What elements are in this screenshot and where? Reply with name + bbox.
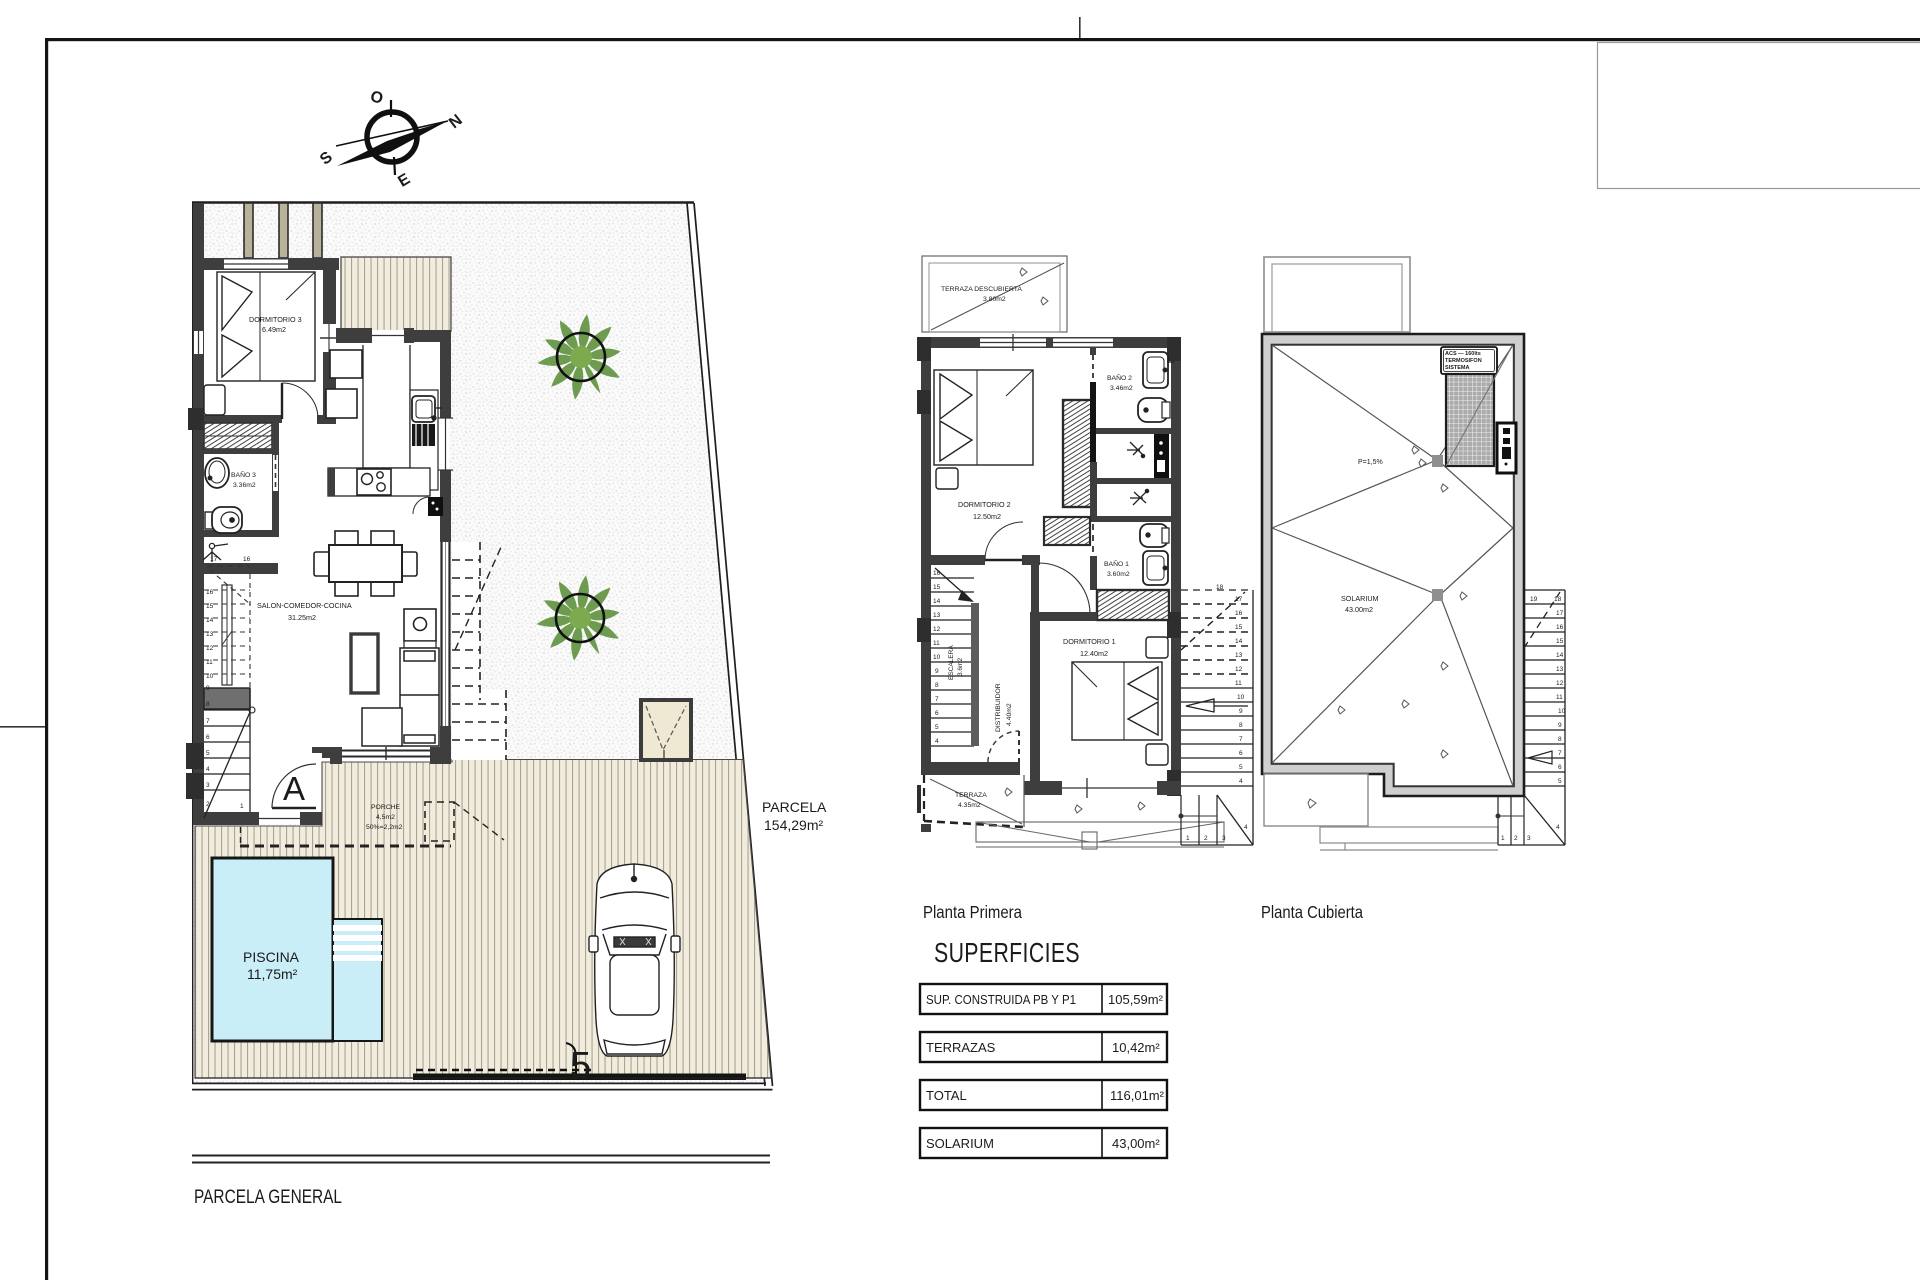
svg-text:3.36m2: 3.36m2: [233, 482, 256, 489]
svg-text:11: 11: [933, 640, 940, 647]
svg-text:TERRAZAS: TERRAZAS: [926, 1040, 996, 1055]
svg-text:12: 12: [206, 645, 214, 652]
svg-text:12.40m2: 12.40m2: [1080, 649, 1108, 658]
svg-text:10: 10: [206, 673, 214, 680]
svg-text:11: 11: [1556, 694, 1563, 701]
svg-text:15: 15: [1556, 638, 1564, 645]
svg-text:116,01m²: 116,01m²: [1110, 1088, 1165, 1103]
svg-text:3.46m2: 3.46m2: [1110, 385, 1133, 392]
svg-text:13: 13: [1235, 652, 1243, 659]
svg-text:4: 4: [206, 766, 210, 773]
svg-text:4,5m2: 4,5m2: [376, 814, 395, 821]
svg-text:SISTEMA: SISTEMA: [1445, 365, 1469, 371]
svg-text:43.00m2: 43.00m2: [1345, 605, 1373, 614]
svg-text:105,59m²: 105,59m²: [1108, 992, 1164, 1007]
svg-text:9: 9: [206, 685, 210, 692]
svg-text:5: 5: [570, 1045, 591, 1087]
svg-text:DORMITORIO 3: DORMITORIO 3: [249, 315, 302, 324]
svg-text:5: 5: [935, 724, 939, 731]
svg-text:6: 6: [1239, 750, 1243, 757]
svg-text:9: 9: [1239, 708, 1243, 715]
svg-text:SUP. CONSTRUIDA PB Y P1: SUP. CONSTRUIDA PB Y P1: [926, 992, 1076, 1007]
svg-text:4: 4: [1239, 778, 1243, 785]
svg-text:17: 17: [1556, 610, 1564, 617]
svg-text:TERRAZA DESCUBIERTA: TERRAZA DESCUBIERTA: [941, 286, 1022, 293]
svg-text:5: 5: [1239, 764, 1243, 771]
svg-text:PARCELA GENERAL: PARCELA GENERAL: [194, 1187, 342, 1208]
svg-text:15: 15: [1235, 624, 1243, 631]
svg-text:TERRAZA: TERRAZA: [955, 792, 987, 799]
svg-text:154,29m²: 154,29m²: [764, 817, 823, 833]
svg-text:8: 8: [935, 682, 939, 689]
svg-text:ESCALERA: ESCALERA: [948, 645, 955, 680]
svg-text:11: 11: [1235, 680, 1242, 687]
svg-text:1: 1: [1501, 835, 1505, 842]
svg-text:16: 16: [1556, 624, 1564, 631]
svg-text:7: 7: [935, 696, 939, 703]
svg-text:15: 15: [933, 584, 941, 591]
svg-text:4.40m2: 4.40m2: [1006, 703, 1013, 726]
svg-text:14: 14: [1235, 638, 1243, 645]
svg-text:17: 17: [1235, 596, 1243, 603]
svg-text:SOLARIUM: SOLARIUM: [926, 1136, 994, 1151]
svg-text:1: 1: [1186, 835, 1190, 842]
svg-text:11,75m²: 11,75m²: [247, 966, 298, 982]
svg-text:3.6m2: 3.6m2: [957, 658, 964, 676]
svg-text:50%=2,2m2: 50%=2,2m2: [366, 824, 403, 831]
svg-text:5: 5: [206, 750, 210, 757]
svg-text:SOLARIUM: SOLARIUM: [1341, 594, 1379, 603]
svg-text:BAÑO 2: BAÑO 2: [1107, 373, 1132, 382]
svg-text:1: 1: [240, 803, 244, 810]
svg-text:7: 7: [1558, 750, 1562, 757]
svg-text:16: 16: [1235, 610, 1243, 617]
svg-text:19: 19: [1530, 596, 1538, 603]
svg-text:8: 8: [1239, 722, 1243, 729]
svg-text:3.60m2: 3.60m2: [1107, 571, 1130, 578]
svg-text:PORCHE: PORCHE: [371, 804, 401, 811]
svg-text:2: 2: [1514, 835, 1518, 842]
svg-text:14: 14: [933, 598, 941, 605]
svg-text:31.25m2: 31.25m2: [288, 613, 316, 622]
svg-text:14: 14: [1556, 652, 1564, 659]
svg-text:BAÑO 3: BAÑO 3: [231, 470, 256, 479]
svg-text:10: 10: [1558, 708, 1566, 715]
svg-text:PARCELA: PARCELA: [762, 799, 827, 815]
svg-text:SUPERFICIES: SUPERFICIES: [934, 937, 1080, 968]
svg-text:Planta Cubierta: Planta Cubierta: [1261, 902, 1363, 922]
svg-text:15: 15: [206, 603, 214, 610]
svg-text:9: 9: [935, 668, 939, 675]
svg-text:3.80m2: 3.80m2: [983, 296, 1006, 303]
svg-text:10,42m²: 10,42m²: [1112, 1040, 1160, 1055]
svg-text:13: 13: [206, 631, 214, 638]
svg-text:PISCINA: PISCINA: [243, 949, 300, 965]
svg-text:2: 2: [1204, 835, 1208, 842]
svg-text:12: 12: [1556, 680, 1564, 687]
svg-text:DISTRIBUIDOR: DISTRIBUIDOR: [995, 683, 1002, 732]
svg-text:DORMITORIO 2: DORMITORIO 2: [958, 500, 1011, 509]
svg-text:17: 17: [210, 556, 218, 563]
svg-text:16: 16: [243, 556, 251, 563]
svg-text:16: 16: [933, 570, 941, 577]
svg-text:SALON-COMEDOR-COCINA: SALON-COMEDOR-COCINA: [257, 601, 352, 610]
svg-text:12.50m2: 12.50m2: [973, 512, 1001, 521]
svg-text:14: 14: [206, 617, 214, 624]
svg-text:16: 16: [206, 589, 214, 596]
svg-text:13: 13: [933, 612, 941, 619]
svg-text:4: 4: [1556, 824, 1560, 831]
svg-text:11: 11: [206, 659, 213, 666]
svg-text:18: 18: [1216, 584, 1224, 591]
svg-text:Planta Primera: Planta Primera: [923, 902, 1022, 922]
svg-text:8: 8: [206, 701, 210, 708]
svg-text:10: 10: [1237, 694, 1245, 701]
svg-text:DORMITORIO 1: DORMITORIO 1: [1063, 637, 1116, 646]
svg-text:10: 10: [933, 654, 941, 661]
svg-text:6.49m2: 6.49m2: [262, 325, 286, 334]
svg-text:3: 3: [206, 782, 210, 789]
svg-text:TERMOSIFON: TERMOSIFON: [1445, 358, 1482, 364]
svg-text:3: 3: [1527, 835, 1531, 842]
svg-text:12: 12: [1235, 666, 1243, 673]
svg-text:TOTAL: TOTAL: [926, 1088, 967, 1103]
svg-text:9: 9: [1558, 722, 1562, 729]
svg-text:ACS — 160lts: ACS — 160lts: [1445, 351, 1481, 357]
svg-text:5: 5: [1558, 778, 1562, 785]
svg-text:6: 6: [935, 710, 939, 717]
svg-text:7: 7: [1239, 736, 1243, 743]
svg-text:A: A: [283, 770, 305, 807]
svg-text:13: 13: [1556, 666, 1564, 673]
svg-text:P=1,5%: P=1,5%: [1358, 459, 1383, 466]
svg-text:43,00m²: 43,00m²: [1112, 1136, 1160, 1151]
svg-text:4: 4: [935, 738, 939, 745]
svg-text:12: 12: [933, 626, 941, 633]
svg-text:BAÑO 1: BAÑO 1: [1104, 559, 1129, 568]
svg-text:4: 4: [1244, 824, 1248, 831]
svg-text:7: 7: [206, 718, 210, 725]
svg-text:4.35m2: 4.35m2: [958, 802, 981, 809]
svg-text:6: 6: [206, 734, 210, 741]
svg-text:3: 3: [1222, 835, 1226, 842]
svg-text:18: 18: [1554, 596, 1562, 603]
svg-text:6: 6: [1558, 764, 1562, 771]
svg-text:8: 8: [1558, 736, 1562, 743]
